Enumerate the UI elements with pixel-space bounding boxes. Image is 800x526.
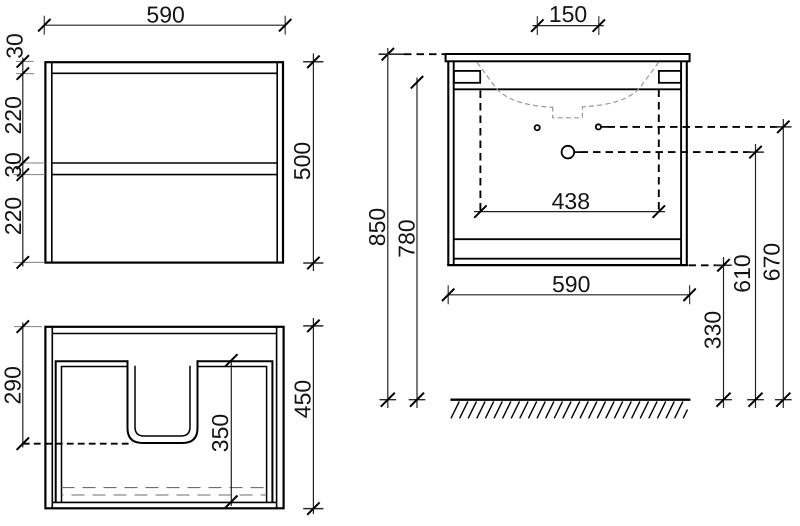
svg-text:290: 290 xyxy=(0,366,26,404)
svg-text:590: 590 xyxy=(552,271,590,297)
svg-text:350: 350 xyxy=(207,414,233,452)
svg-text:590: 590 xyxy=(146,1,184,27)
svg-text:150: 150 xyxy=(549,1,587,27)
svg-text:500: 500 xyxy=(289,142,315,180)
svg-text:610: 610 xyxy=(729,254,755,292)
svg-text:30: 30 xyxy=(1,33,27,59)
svg-text:780: 780 xyxy=(393,219,419,257)
svg-text:670: 670 xyxy=(759,243,785,281)
svg-text:30: 30 xyxy=(0,152,26,178)
svg-text:220: 220 xyxy=(0,96,26,134)
svg-text:438: 438 xyxy=(552,188,590,214)
svg-text:220: 220 xyxy=(0,197,26,235)
svg-text:450: 450 xyxy=(289,380,315,418)
svg-text:850: 850 xyxy=(364,208,390,246)
svg-text:330: 330 xyxy=(700,311,726,349)
